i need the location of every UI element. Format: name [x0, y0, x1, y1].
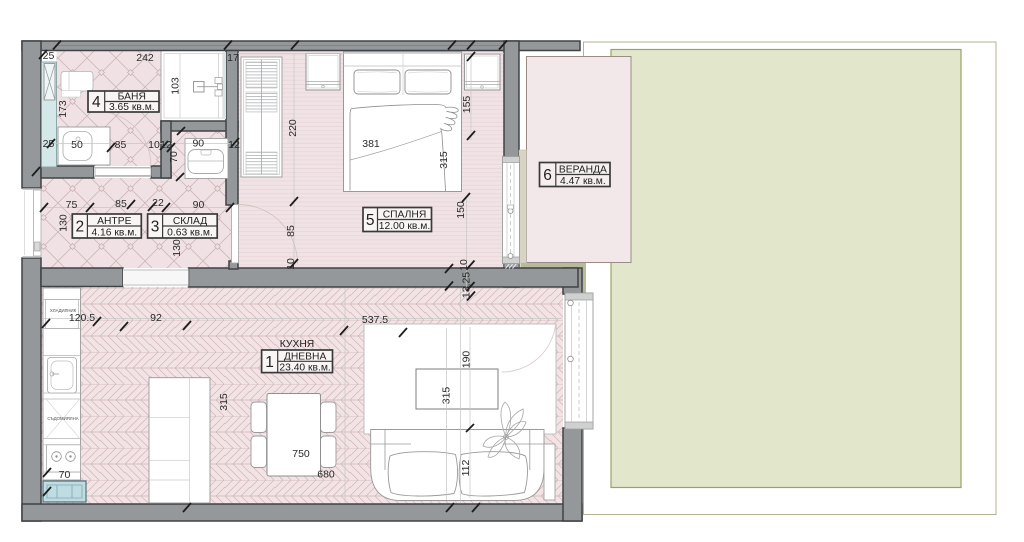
svg-text:СПАЛНЯ: СПАЛНЯ — [383, 209, 427, 220]
svg-text:ХЛАДИЛНИК: ХЛАДИЛНИК — [50, 308, 77, 313]
svg-text:70: 70 — [168, 151, 180, 163]
svg-text:150: 150 — [455, 201, 467, 219]
svg-text:СКЛАД: СКЛАД — [173, 216, 207, 227]
svg-text:1: 1 — [265, 354, 274, 371]
svg-text:85: 85 — [115, 198, 127, 210]
svg-text:2: 2 — [75, 219, 84, 236]
svg-text:6: 6 — [543, 167, 552, 184]
svg-text:85: 85 — [115, 139, 127, 151]
svg-text:315: 315 — [441, 387, 453, 405]
svg-text:90: 90 — [192, 138, 204, 150]
svg-text:4.47 кв.м.: 4.47 кв.м. — [560, 176, 606, 187]
svg-text:12.00 кв.м.: 12.00 кв.м. — [379, 221, 430, 232]
svg-text:50: 50 — [71, 139, 83, 151]
svg-text:85: 85 — [285, 225, 297, 237]
svg-text:242: 242 — [136, 52, 154, 64]
svg-text:БАНЯ: БАНЯ — [118, 92, 146, 103]
svg-text:10: 10 — [458, 259, 470, 271]
svg-text:22: 22 — [152, 197, 164, 209]
svg-text:17: 17 — [227, 52, 239, 64]
svg-text:АНТРЕ: АНТРЕ — [97, 216, 131, 227]
svg-text:537.5: 537.5 — [362, 314, 388, 326]
svg-text:381: 381 — [362, 138, 380, 150]
svg-text:220: 220 — [287, 119, 299, 137]
svg-text:190: 190 — [461, 351, 473, 369]
svg-text:13,25: 13,25 — [461, 272, 473, 298]
svg-text:25: 25 — [43, 50, 55, 62]
svg-text:112: 112 — [460, 459, 472, 476]
svg-text:25: 25 — [43, 138, 55, 150]
svg-text:70: 70 — [59, 469, 71, 481]
svg-text:75: 75 — [66, 199, 78, 211]
svg-text:750: 750 — [292, 448, 310, 460]
svg-text:130: 130 — [171, 239, 183, 257]
svg-text:120.5: 120.5 — [69, 312, 95, 324]
svg-text:90: 90 — [193, 199, 205, 211]
svg-text:680: 680 — [317, 469, 335, 481]
svg-text:103: 103 — [170, 77, 182, 95]
svg-text:315: 315 — [438, 151, 450, 169]
svg-text:12: 12 — [160, 139, 172, 151]
svg-text:92: 92 — [150, 312, 162, 324]
svg-text:5: 5 — [366, 212, 375, 229]
svg-text:173: 173 — [57, 100, 69, 118]
svg-text:3.65 кв.м.: 3.65 кв.м. — [109, 102, 155, 113]
svg-text:155: 155 — [461, 96, 473, 114]
svg-text:12: 12 — [228, 139, 240, 151]
svg-text:23.40 кв.м.: 23.40 кв.м. — [279, 362, 330, 373]
svg-text:4: 4 — [92, 94, 101, 111]
svg-text:ВЕРАНДА: ВЕРАНДА — [559, 164, 607, 175]
svg-text:3: 3 — [151, 219, 160, 236]
svg-text:ДНЕВНА: ДНЕВНА — [284, 351, 327, 362]
svg-text:СЪДОМИЯЛНА: СЪДОМИЯЛНА — [47, 416, 78, 421]
svg-text:4.16 кв.м.: 4.16 кв.м. — [91, 228, 137, 239]
svg-text:10: 10 — [285, 258, 297, 270]
svg-text:315: 315 — [218, 393, 230, 411]
svg-text:КУХНЯ: КУХНЯ — [280, 339, 314, 350]
svg-text:130: 130 — [58, 214, 70, 232]
svg-text:10: 10 — [148, 139, 160, 151]
svg-text:0.63 кв.м.: 0.63 кв.м. — [167, 228, 213, 239]
